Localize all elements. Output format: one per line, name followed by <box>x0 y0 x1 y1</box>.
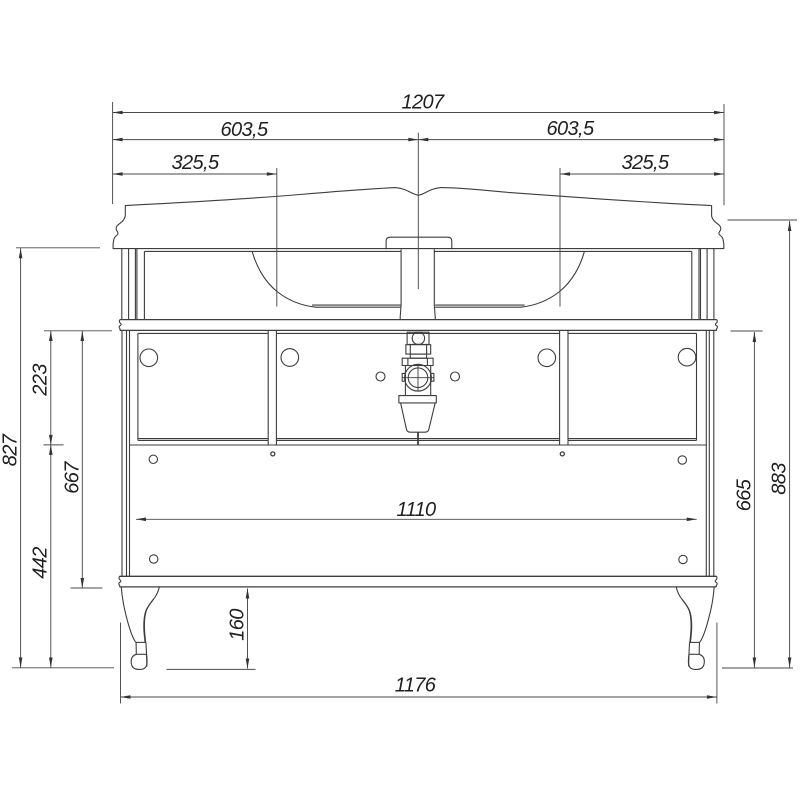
svg-text:223: 223 <box>30 364 52 397</box>
svg-text:827: 827 <box>0 433 22 466</box>
svg-text:160: 160 <box>227 609 249 641</box>
svg-text:1176: 1176 <box>395 675 437 697</box>
svg-text:1110: 1110 <box>396 499 436 521</box>
svg-text:665: 665 <box>734 478 756 511</box>
svg-text:1207: 1207 <box>401 91 445 113</box>
svg-text:325,5: 325,5 <box>171 152 220 174</box>
svg-text:603,5: 603,5 <box>546 118 595 140</box>
svg-text:883: 883 <box>769 463 791 495</box>
svg-text:325,5: 325,5 <box>621 152 670 174</box>
svg-text:667: 667 <box>62 461 84 494</box>
svg-text:603,5: 603,5 <box>220 119 269 141</box>
svg-text:442: 442 <box>30 547 52 579</box>
